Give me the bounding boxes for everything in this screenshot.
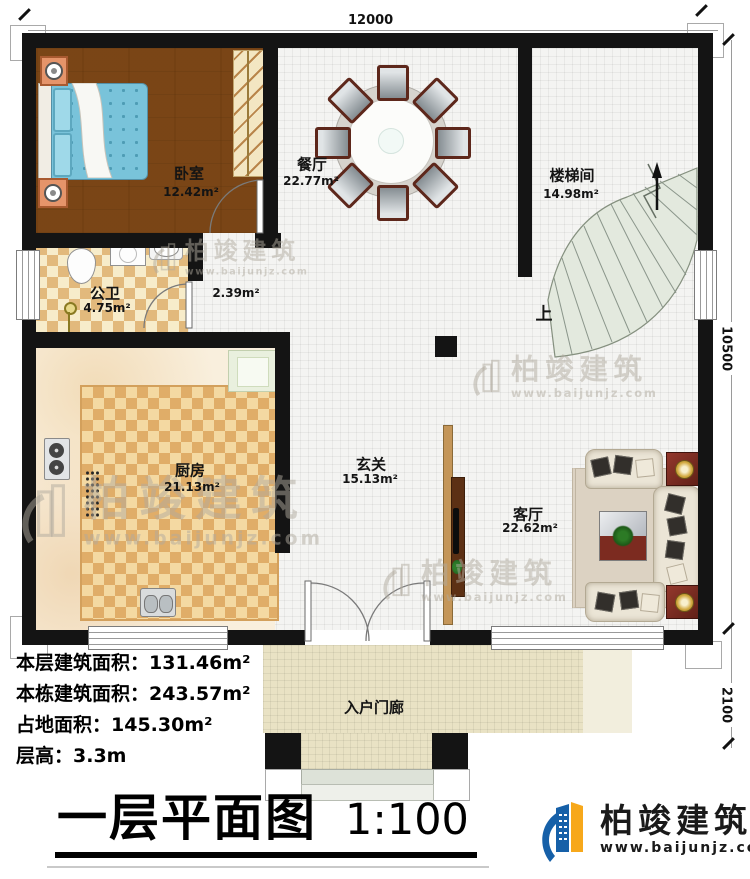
window-stairwell <box>694 250 717 320</box>
label-bedroom-area: 12.42m² <box>163 186 219 198</box>
wall-dining-stair <box>518 33 532 277</box>
staircase <box>520 150 705 365</box>
stove <box>44 438 70 480</box>
table-plant <box>612 525 634 547</box>
brand-logo: 柏竣建筑 www.baijunjz.com <box>538 794 750 866</box>
dim-tick <box>18 8 31 21</box>
info-value: 3.3m <box>73 745 126 767</box>
sofa-bottom <box>585 582 665 622</box>
brand-logo-icon <box>538 794 590 866</box>
wall-bathroom-kitchen <box>22 332 290 348</box>
floor-porch-center <box>301 733 432 769</box>
bed <box>38 83 146 178</box>
drawing-title: 一层平面图 1:100 <box>57 790 469 848</box>
side-table <box>666 452 702 486</box>
label-foyer: 玄关 <box>356 458 386 473</box>
sofa-top <box>585 449 663 489</box>
floor-porch <box>263 645 632 733</box>
info-label: 占地面积： <box>16 714 111 736</box>
wall-bedroom-bottom <box>22 233 202 248</box>
label-stairwell: 楼梯间 <box>549 169 594 184</box>
floor-drain-stem <box>68 312 70 332</box>
info-line: 层高：3.3m <box>16 741 250 772</box>
wall-bathroom-right <box>188 233 203 281</box>
floor-porch-light <box>583 645 632 733</box>
dim-label-right-upper: 10500 <box>718 322 732 375</box>
window-bathroom <box>16 250 40 320</box>
wardrobe <box>233 50 265 177</box>
floor-drain <box>64 302 77 315</box>
porch-column <box>265 733 301 769</box>
wall-top <box>22 33 713 48</box>
bed-blanket <box>38 83 146 178</box>
dim-box-right-mid <box>685 641 722 669</box>
label-foyer-area: 15.13m² <box>342 473 398 485</box>
title-underline-thin <box>47 866 489 868</box>
wardrobe-rod <box>247 51 249 176</box>
info-label: 层高： <box>16 745 73 767</box>
wall-bedroom-right <box>263 48 278 233</box>
dim-label-right-lower: 2100 <box>718 683 732 727</box>
info-line: 本栋建筑面积：243.57m² <box>16 679 250 710</box>
label-dining: 餐厅 <box>297 158 327 173</box>
dining-chair <box>435 127 471 159</box>
brand-url: www.baijunjz.com <box>600 840 750 856</box>
tv-screen <box>453 508 459 554</box>
dim-line-top <box>28 30 718 31</box>
window-living <box>491 626 664 650</box>
build-info: 本层建筑面积：131.46m² 本栋建筑面积：243.57m² 占地面积：145… <box>16 648 250 772</box>
kitchen-sink <box>140 588 176 617</box>
side-table <box>666 585 702 619</box>
nightstand <box>38 178 68 208</box>
info-value: 131.46m² <box>149 652 250 674</box>
label-stairwell-area: 14.98m² <box>543 188 599 200</box>
title-scale: 1:100 <box>345 794 469 848</box>
dim-tick <box>722 33 735 46</box>
title-text: 一层平面图 <box>57 790 317 848</box>
label-porch: 入户门廊 <box>344 701 404 716</box>
info-label: 本层建筑面积： <box>16 652 149 674</box>
title-underline-thick <box>55 852 477 858</box>
info-value: 145.30m² <box>111 714 212 736</box>
dim-tick <box>722 737 735 750</box>
brand-name: 柏竣建筑 <box>600 804 750 837</box>
label-bedroom: 卧室 <box>174 167 204 182</box>
dining-chair <box>377 185 409 221</box>
wall-bottom-seg <box>22 630 90 645</box>
dining-table-center <box>378 128 404 154</box>
dining-chair <box>315 127 351 159</box>
info-line: 占地面积：145.30m² <box>16 710 250 741</box>
label-living-area: 22.62m² <box>502 522 558 534</box>
dim-label-top: 12000 <box>344 14 397 28</box>
info-label: 本栋建筑面积： <box>16 683 149 705</box>
burner <box>49 443 64 458</box>
dining-chair <box>377 65 409 101</box>
sofa-right <box>653 486 701 592</box>
label-bathroom: 公卫 <box>90 287 120 302</box>
label-kitchen-area: 21.13m² <box>164 481 220 493</box>
label-dining-area: 22.77m² <box>283 175 339 187</box>
wall-bottom-seg <box>226 630 305 645</box>
dim-tick <box>722 622 735 635</box>
nightstand-lamp <box>45 62 63 80</box>
nightstand-lamp <box>44 184 62 202</box>
window-kitchen <box>88 626 228 650</box>
cabinet-plant <box>452 560 462 574</box>
wall-bottom-seg <box>662 630 713 645</box>
nightstand <box>40 56 68 86</box>
dim-line-right <box>731 40 732 748</box>
stair-direction-arrow <box>652 162 662 178</box>
floor-plan-canvas: 12000 10500 2100 <box>0 0 750 879</box>
dim-tick <box>695 4 708 17</box>
coffee-table <box>599 511 647 561</box>
dining-set <box>334 84 446 196</box>
wall-bottom-seg <box>430 630 491 645</box>
label-bathroom-area: 4.75m² <box>83 302 130 314</box>
wall-right <box>698 33 713 645</box>
wall-kitchen-right <box>275 348 290 553</box>
label-hall-area: 2.39m² <box>212 287 259 299</box>
kitchen-vent-grate <box>85 470 101 518</box>
wall-bedroom-bottom-stub <box>255 233 281 248</box>
info-value: 243.57m² <box>149 683 250 705</box>
label-stairs-up: 上 <box>536 307 553 324</box>
kitchen-cabinet <box>228 350 276 392</box>
label-kitchen: 厨房 <box>175 464 205 479</box>
table-lamp <box>675 593 694 612</box>
kitchen-mat <box>80 385 279 621</box>
porch-column <box>432 733 468 769</box>
info-line: 本层建筑面积：131.46m² <box>16 648 250 679</box>
table-lamp <box>675 460 694 479</box>
burner <box>49 460 64 475</box>
structural-column <box>435 336 457 357</box>
